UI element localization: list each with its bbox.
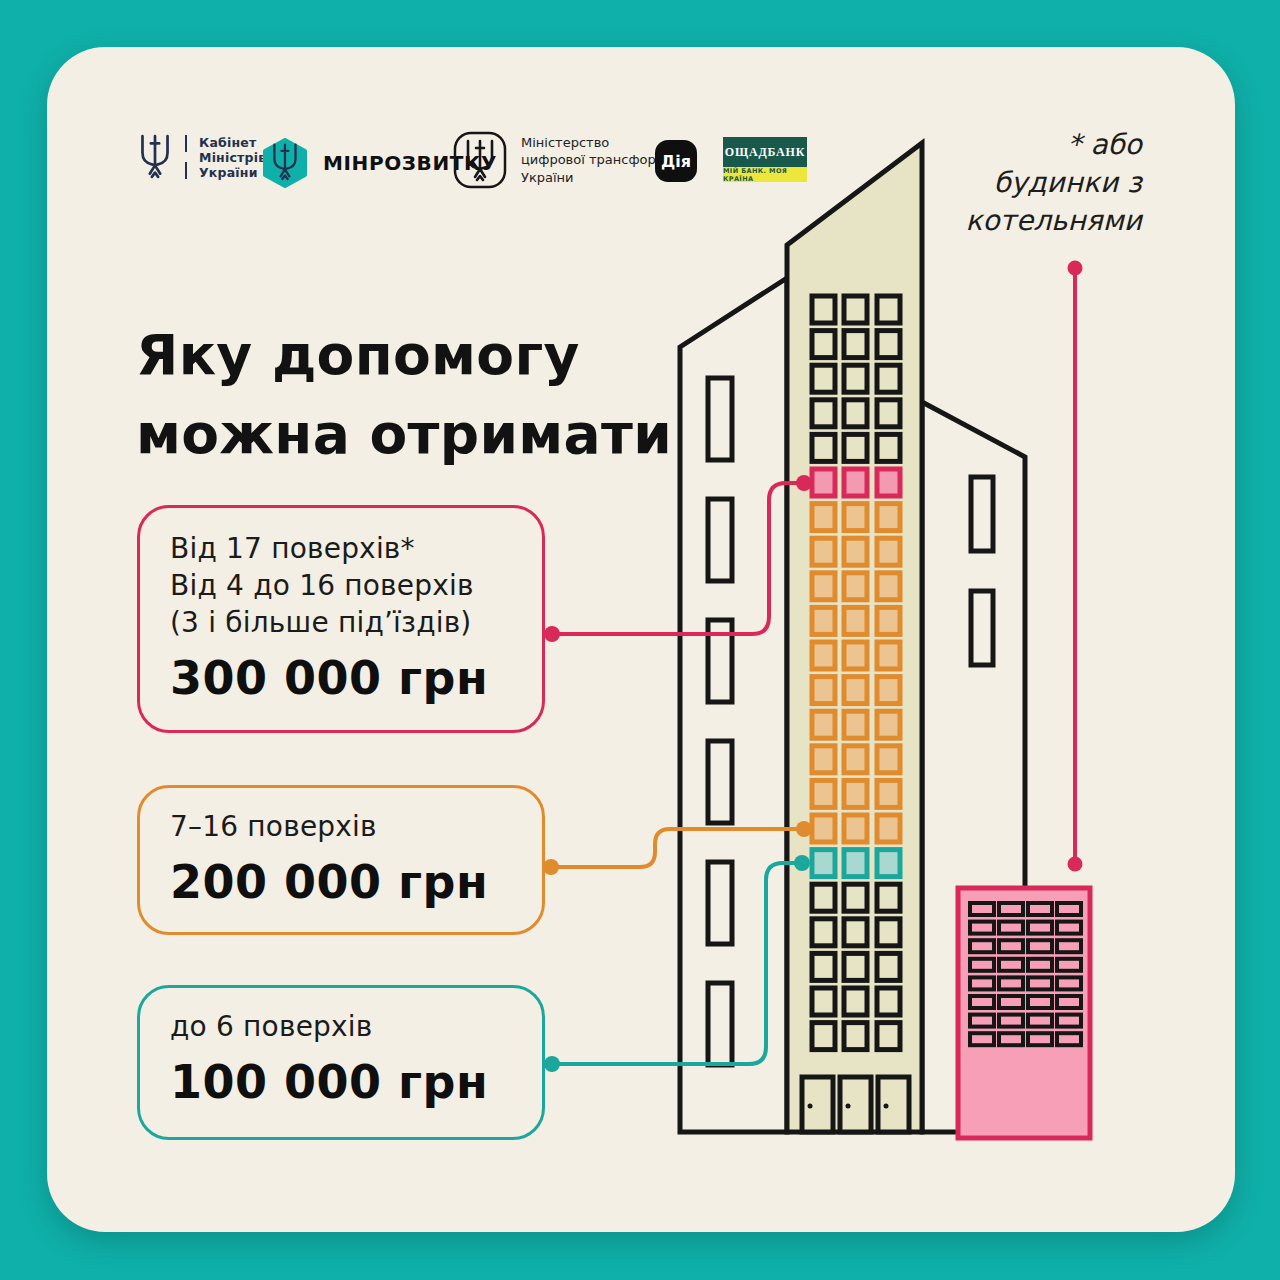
title-line-1: Яку допомогу xyxy=(136,316,672,395)
logo-cabinet-of-ministers: Кабінет Міністрів України xyxy=(137,133,266,181)
window xyxy=(812,746,835,773)
central-building xyxy=(787,143,922,1132)
window xyxy=(877,850,900,877)
window xyxy=(844,746,867,773)
aid-card-from-17-floors: Від 17 поверхів* Від 4 до 16 поверхів (3… xyxy=(137,505,545,733)
window xyxy=(812,780,835,807)
aid-card-to-6-floors: до 6 поверхів 100 000 грн xyxy=(137,985,545,1140)
oschadbank-title: ОЩАДБАНК xyxy=(723,137,807,167)
door xyxy=(840,1077,871,1132)
note-line: будинки з xyxy=(900,164,1142,202)
window xyxy=(812,711,835,738)
window xyxy=(844,850,867,877)
page-title: Яку допомогу можна отримати xyxy=(136,316,672,474)
window xyxy=(812,815,835,842)
aid-card-line: (3 і більше під’їздів) xyxy=(170,604,524,641)
window xyxy=(877,538,900,565)
aid-amount: 100 000 грн xyxy=(170,1055,524,1109)
boiler-building xyxy=(958,888,1090,1138)
window xyxy=(877,642,900,669)
window xyxy=(877,815,900,842)
window xyxy=(844,815,867,842)
window xyxy=(812,677,835,704)
window xyxy=(812,642,835,669)
window xyxy=(812,607,835,634)
window xyxy=(844,607,867,634)
window xyxy=(844,677,867,704)
aid-card-7-16-floors: 7–16 поверхів 200 000 грн xyxy=(137,785,545,935)
left-building xyxy=(680,278,787,1132)
window xyxy=(877,677,900,704)
window xyxy=(877,746,900,773)
window xyxy=(812,573,835,600)
kmu-line: України xyxy=(199,165,266,180)
window xyxy=(877,469,900,496)
window xyxy=(844,780,867,807)
window xyxy=(877,607,900,634)
window xyxy=(812,469,835,496)
aid-card-line: до 6 поверхів xyxy=(170,1008,524,1045)
window xyxy=(844,469,867,496)
logo-diia: Дія xyxy=(655,140,697,182)
aid-amount: 200 000 грн xyxy=(170,855,524,909)
window xyxy=(844,573,867,600)
connector-teal xyxy=(552,863,802,1064)
logo-oschadbank: ОЩАДБАНК МІЙ БАНК. МОЯ КРАЇНА xyxy=(723,137,807,182)
window xyxy=(877,504,900,531)
window xyxy=(812,850,835,877)
window xyxy=(844,538,867,565)
window xyxy=(877,780,900,807)
trident-icon xyxy=(137,133,173,181)
diia-label: Дія xyxy=(661,152,691,171)
window xyxy=(812,538,835,565)
mintsyfra-trident-icon xyxy=(453,131,507,189)
kmu-line: Кабінет xyxy=(199,135,266,150)
window xyxy=(844,642,867,669)
title-line-2: можна отримати xyxy=(136,395,672,474)
window xyxy=(877,573,900,600)
window xyxy=(877,711,900,738)
asterisk-note: * або будинки з котельнями xyxy=(900,126,1142,240)
aid-card-line: Від 4 до 16 поверхів xyxy=(170,567,524,604)
kmu-line: Міністрів xyxy=(199,150,266,165)
window xyxy=(812,504,835,531)
note-line: котельнями xyxy=(900,202,1142,240)
aid-card-line: 7–16 поверхів xyxy=(170,808,524,845)
door xyxy=(878,1077,909,1132)
logo-divider xyxy=(185,135,187,179)
note-line: * або xyxy=(900,126,1142,164)
oschadbank-subtitle: МІЙ БАНК. МОЯ КРАЇНА xyxy=(723,167,807,182)
aid-card-line: Від 17 поверхів* xyxy=(170,530,524,567)
door xyxy=(802,1077,833,1132)
aid-amount: 300 000 грн xyxy=(170,651,524,705)
minrozvytku-hexagon-trident-icon xyxy=(262,138,308,188)
entrance-doors xyxy=(802,1077,909,1132)
window xyxy=(844,711,867,738)
window xyxy=(844,504,867,531)
